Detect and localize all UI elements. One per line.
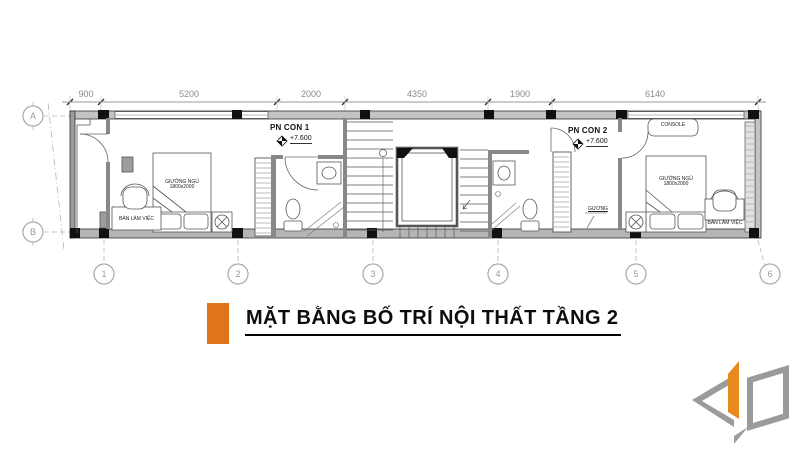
bed-left-size: 1800x2000	[155, 185, 209, 190]
staircase	[347, 122, 488, 238]
console-label: CONSOLE	[648, 123, 698, 128]
grid-col-3: 3	[370, 269, 375, 279]
bed-left	[153, 153, 211, 232]
dim-6140: 6140	[645, 89, 665, 99]
window-top-right	[628, 112, 744, 119]
grid-col-6: 6	[767, 269, 772, 279]
grid-col-2: 2	[235, 269, 240, 279]
dim-4350: 4350	[407, 89, 427, 99]
logo-orange-bar	[728, 361, 739, 419]
floor-plan-drawing	[0, 0, 800, 300]
room2-level-label: +7.600	[586, 138, 608, 147]
bed-right-label: GIƯỜNG NGỦ 1800x2000	[648, 177, 704, 187]
room2-name-label: PN CON 2	[568, 126, 607, 135]
window-right-wall	[745, 122, 755, 232]
drawing-title: MẶT BẰNG BỐ TRÍ NỘI THẤT TẦNG 2	[245, 303, 621, 336]
bed-right-size: 1800x2000	[648, 182, 704, 187]
logo-gray-frame	[750, 369, 786, 427]
dim-1900: 1900	[510, 89, 530, 99]
logo-gray-chevron	[692, 375, 748, 444]
grid-col-4: 4	[495, 269, 500, 279]
desk-right	[705, 190, 744, 220]
grid-row-a: A	[30, 111, 36, 121]
side-table-right	[626, 212, 646, 232]
title-accent-block	[207, 303, 229, 344]
wardrobe-left	[255, 158, 272, 236]
screenshot-root: 900 5200 2000 4350 1900 6140 A B 1 2 3 4…	[0, 0, 800, 450]
bed-right	[646, 156, 706, 232]
grid-col-1: 1	[101, 269, 106, 279]
toilet-2	[521, 199, 539, 231]
dim-900: 900	[78, 89, 93, 99]
dim-2000: 2000	[301, 89, 321, 99]
level-marker-1	[277, 136, 287, 146]
room1-name-label: PN CON 1	[270, 123, 309, 132]
sink-1	[317, 162, 341, 184]
company-logo	[686, 356, 792, 446]
desk-right-label: BÀN LÀM VIỆC	[704, 221, 746, 226]
corridor	[585, 213, 607, 228]
grid-col-5: 5	[633, 269, 638, 279]
side-table-left	[212, 212, 232, 232]
room1-level-label: +7.600	[290, 135, 312, 144]
window-top-left	[115, 112, 268, 119]
desk-left-label: BÀN LÀM VIỆC	[112, 217, 161, 222]
title-row: MẶT BẰNG BỐ TRÍ NỘI THẤT TẦNG 2	[207, 303, 621, 344]
wardrobe-right	[553, 152, 571, 232]
grid-row-b: B	[30, 227, 36, 237]
sink-2	[493, 161, 515, 185]
mirror-label: GƯƠNG	[588, 206, 608, 212]
dim-5200: 5200	[179, 89, 199, 99]
bed-left-label: GIƯỜNG NGỦ 1800x2000	[155, 180, 209, 190]
toilet-1	[284, 199, 302, 231]
